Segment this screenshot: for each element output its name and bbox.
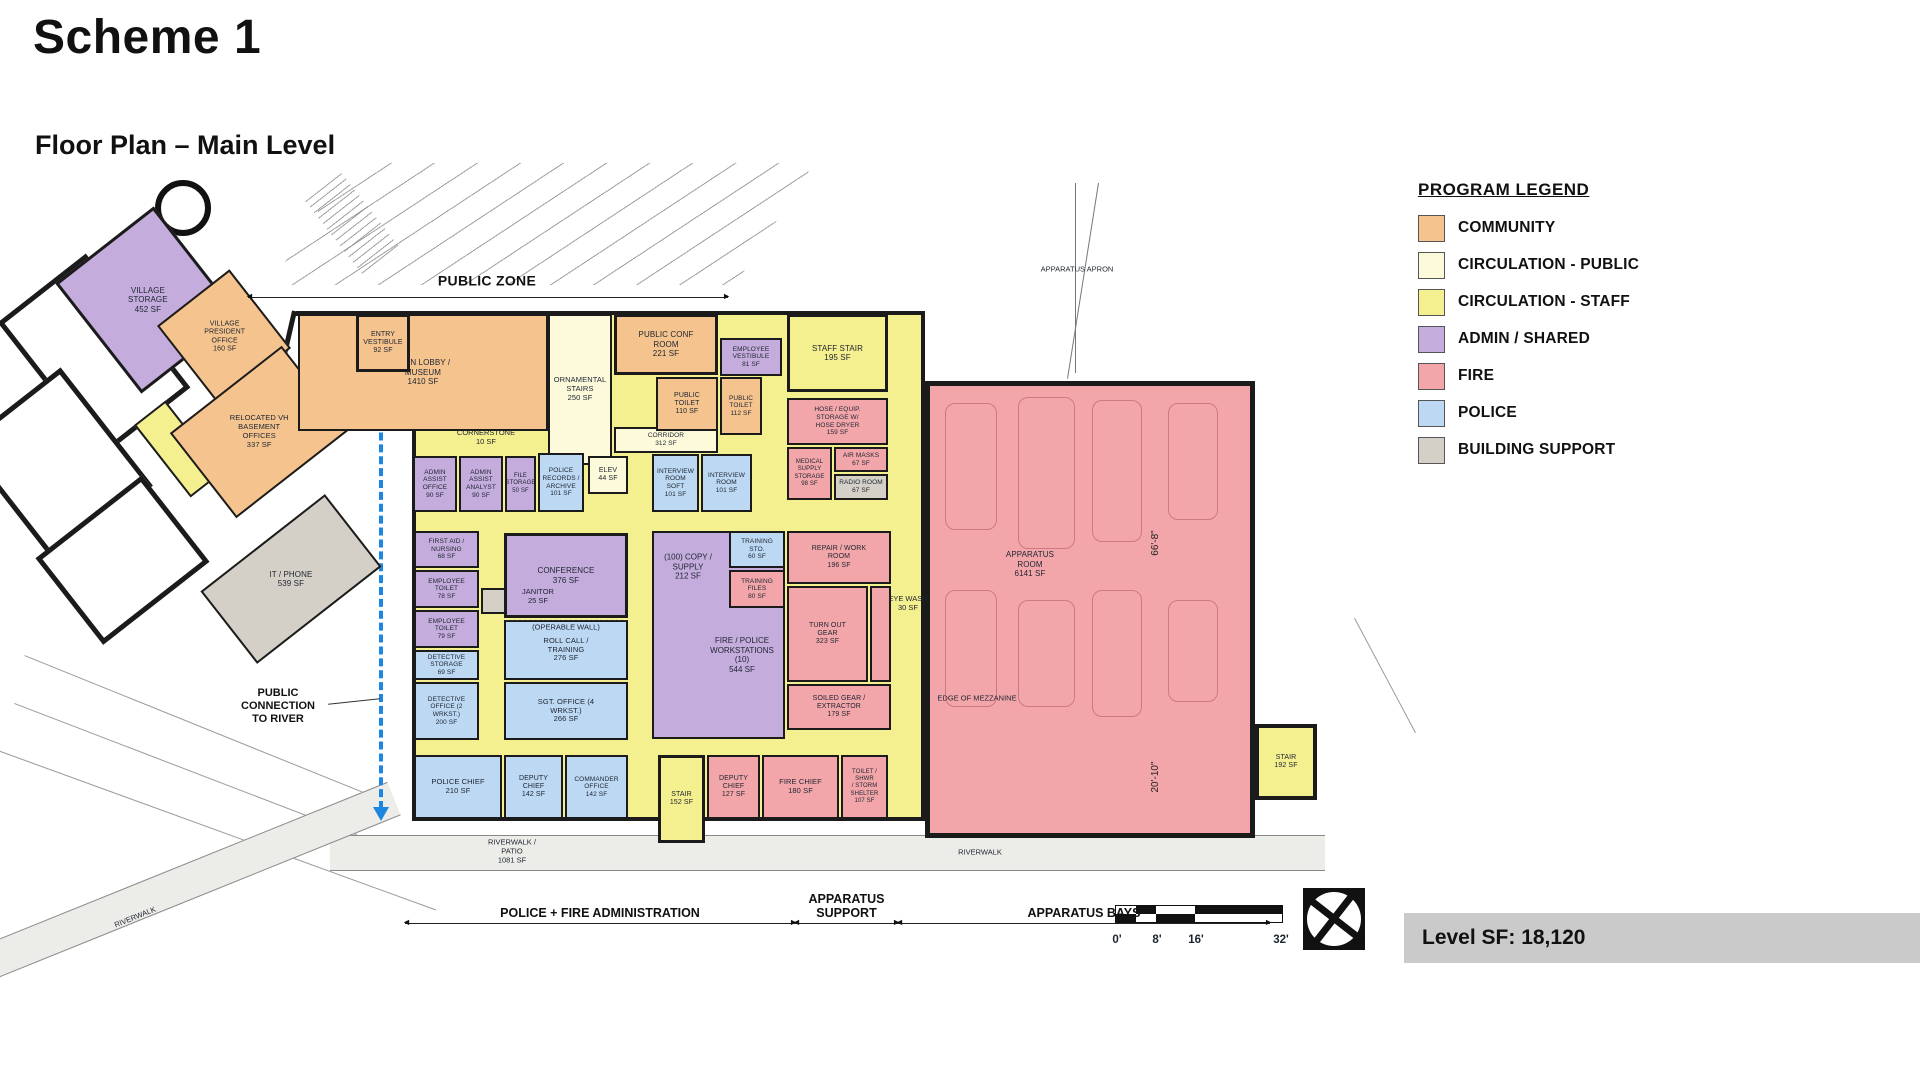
- legend-item-police: POLICE: [1418, 399, 1748, 427]
- annotation: PUBLIC ZONE: [438, 273, 536, 290]
- dimension-label: POLICE + FIRE ADMINISTRATION: [405, 907, 795, 921]
- riverwalk-path-angled: [0, 782, 401, 980]
- legend-title: PROGRAM LEGEND: [1418, 180, 1748, 200]
- public-route-dashed-path: [379, 373, 383, 809]
- village-storage-label: VILLAGE STORAGE452 SF: [128, 286, 168, 314]
- first-aid-nursing: FIRST AID / NURSING68 SF: [414, 531, 479, 568]
- turn-out-gear: TURN OUT GEAR323 SF: [787, 586, 868, 682]
- annotation: RIVERWALK: [958, 848, 1002, 857]
- medical-supply-storage: MEDICAL SUPPLY STORAGE98 SF: [787, 447, 832, 500]
- legend-label: COMMUNITY: [1458, 219, 1555, 237]
- admin-assist-office-label: ADMIN ASSIST OFFICE90 SF: [423, 469, 447, 500]
- admin-assist-analyst-label: ADMIN ASSIST ANALYST90 SF: [466, 469, 496, 500]
- interview-room-soft: INTERVIEW ROOM SOFT101 SF: [652, 454, 699, 512]
- interview-room-soft-label: INTERVIEW ROOM SOFT101 SF: [657, 468, 694, 499]
- corridor-label: CORRIDOR312 SF: [648, 432, 684, 447]
- public-toilet-2-label: PUBLIC TOILET112 SF: [729, 395, 753, 418]
- legend-item-support: BUILDING SUPPORT: [1418, 436, 1748, 464]
- annotation: (OPERABLE WALL): [532, 623, 600, 632]
- employee-toilet-2: EMPLOYEE TOILET79 SF: [414, 610, 479, 648]
- public-toilet-1: PUBLIC TOILET110 SF: [656, 377, 718, 431]
- radio-room: RADIO ROOM67 SF: [834, 474, 888, 500]
- annotation: 32': [1273, 934, 1289, 948]
- legend-label: FIRE: [1458, 367, 1494, 385]
- fire-apparatus-outline: [1018, 600, 1075, 707]
- fire-apparatus-outline: [945, 403, 997, 530]
- relocated-vh-basement-offices-label: RELOCATED VH BASEMENT OFFICES337 SF: [230, 414, 289, 449]
- fire-apparatus-outline: [1092, 400, 1142, 542]
- toilet-shwr-storm-shelter-label: TOILET / SHWR / STORM SHELTER107 SF: [843, 769, 886, 804]
- deputy-chief-police: DEPUTY CHIEF142 SF: [504, 755, 563, 819]
- sgt-office: SGT. OFFICE (4 WRKST.)266 SF: [504, 682, 628, 740]
- site-boundary-line: [1067, 183, 1099, 379]
- north-compass-icon: [1303, 888, 1365, 950]
- deputy-chief-fire: DEPUTY CHIEF127 SF: [707, 755, 760, 819]
- site-boundary-line: [1075, 183, 1076, 373]
- legend-label: BUILDING SUPPORT: [1458, 441, 1615, 459]
- public-conf-room: PUBLIC CONF ROOM221 SF: [614, 314, 718, 375]
- dimension-line: POLICE + FIRE ADMINISTRATION◄►: [405, 923, 795, 924]
- police-records-archive: POLICE RECORDS / ARCHIVE101 SF: [538, 453, 584, 512]
- training-files-label: TRAINING FILES80 SF: [741, 578, 773, 601]
- training-storage-label: TRAINING STO.60 SF: [741, 538, 773, 561]
- admin-assist-office: ADMIN ASSIST OFFICE90 SF: [413, 456, 457, 512]
- air-masks-label: AIR MASKS67 SF: [843, 452, 879, 467]
- operable-wall-dashed-line: [506, 620, 626, 621]
- public-conf-room-label: PUBLIC CONF ROOM221 SF: [639, 330, 694, 358]
- dimension-label: APPARATUS BAYS: [898, 907, 1270, 921]
- dimension-line: ◄►: [248, 297, 728, 298]
- riverwalk-path: [330, 835, 1325, 871]
- detective-storage: DETECTIVE STORAGE69 SF: [414, 650, 479, 680]
- repair-work-room: REPAIR / WORK ROOM196 SF: [787, 531, 891, 584]
- elevator: ELEV44 SF: [588, 456, 628, 494]
- police-records-archive-label: POLICE RECORDS / ARCHIVE101 SF: [542, 467, 579, 498]
- employee-vestibule-label: EMPLOYEE VESTIBULE81 SF: [733, 346, 770, 369]
- file-storage-label: FILE STORAGE50 SF: [506, 473, 536, 494]
- it-phone-label: IT / PHONE539 SF: [269, 570, 312, 589]
- employee-toilet-2-label: EMPLOYEE TOILET79 SF: [428, 618, 465, 641]
- ornamental-stairs-label: ORNAMENTAL STAIRS250 SF: [554, 376, 607, 403]
- hose-equip-storage-label: HOSE / EQUIP. STORAGE W/ HOSE DRYER159 S…: [814, 406, 860, 437]
- toilet-shwr-storm-shelter: TOILET / SHWR / STORM SHELTER107 SF: [841, 755, 888, 819]
- annotation: CORNERSTONE 10 SF: [457, 428, 515, 446]
- annotation: PUBLIC CONNECTION TO RIVER: [241, 687, 315, 727]
- program-legend: PROGRAM LEGEND COMMUNITYCIRCULATION - PU…: [1418, 180, 1748, 473]
- stair-192: STAIR192 SF: [1255, 724, 1317, 800]
- entry-vestibule-label: ENTRY VESTIBULE92 SF: [363, 331, 402, 356]
- detective-office: DETECTIVE OFFICE (2 WRKST.)200 SF: [414, 682, 479, 740]
- commander-office: COMMANDER OFFICE142 SF: [565, 755, 628, 819]
- village-president-office-label: VILLAGE PRESIDENT OFFICE160 SF: [204, 321, 245, 354]
- it-phone: IT / PHONE539 SF: [200, 494, 381, 664]
- legend-label: POLICE: [1458, 404, 1517, 422]
- detective-office-label: DETECTIVE OFFICE (2 WRKST.)200 SF: [428, 696, 465, 727]
- fire-apparatus-outline: [1168, 600, 1218, 702]
- floor-plan: VILLAGE STORAGE452 SFVILLAGE PRESIDENT O…: [30, 175, 1450, 1005]
- legend-item-fire: FIRE: [1418, 362, 1748, 390]
- annotation: EYE WASH 30 SF: [888, 594, 927, 612]
- annotation: 20'-10": [1150, 761, 1162, 792]
- deputy-chief-fire-label: DEPUTY CHIEF127 SF: [719, 775, 748, 800]
- dimension-label: APPARATUS SUPPORT: [795, 893, 898, 920]
- annotation: RIVERWALK / PATIO 1081 SF: [488, 838, 536, 865]
- employee-vestibule: EMPLOYEE VESTIBULE81 SF: [720, 338, 782, 376]
- fire-chief-label: FIRE CHIEF180 SF: [779, 778, 822, 796]
- stair-192-label: STAIR192 SF: [1274, 754, 1297, 771]
- site-line: [1354, 618, 1416, 733]
- public-toilet-2: PUBLIC TOILET112 SF: [720, 377, 762, 435]
- public-toilet-1-label: PUBLIC TOILET110 SF: [674, 392, 700, 417]
- legend-items: COMMUNITYCIRCULATION - PUBLICCIRCULATION…: [1418, 214, 1748, 464]
- turn-out-gear-label: TURN OUT GEAR323 SF: [809, 622, 846, 647]
- repair-work-room-label: REPAIR / WORK ROOM196 SF: [812, 545, 866, 570]
- hose-equip-storage: HOSE / EQUIP. STORAGE W/ HOSE DRYER159 S…: [787, 398, 888, 445]
- legend-item-circ_staff: CIRCULATION - STAFF: [1418, 288, 1748, 316]
- note-leader-line: [328, 698, 380, 704]
- employee-toilet-1-label: EMPLOYEE TOILET78 SF: [428, 578, 465, 601]
- fire-chief: FIRE CHIEF180 SF: [762, 755, 839, 819]
- annotation: APPARATUS APRON: [1041, 265, 1114, 274]
- conference-label: CONFERENCE376 SF: [537, 566, 594, 585]
- level-sf-bar: Level SF: 18,120: [1404, 913, 1920, 963]
- legend-item-circ_public: CIRCULATION - PUBLIC: [1418, 251, 1748, 279]
- medical-supply-storage-label: MEDICAL SUPPLY STORAGE98 SF: [795, 459, 825, 487]
- staff-stair: STAFF STAIR195 SF: [787, 314, 888, 392]
- annotation: 8': [1152, 934, 1161, 948]
- interview-room-label: INTERVIEW ROOM101 SF: [708, 472, 745, 495]
- training-files: TRAINING FILES80 SF: [729, 570, 785, 608]
- fire-apparatus-outline: [1018, 397, 1075, 549]
- site-line: [24, 655, 395, 806]
- apparatus-room-label: APPARATUS ROOM6141 SF: [1006, 550, 1054, 578]
- legend-label: CIRCULATION - STAFF: [1458, 293, 1630, 311]
- legend-item-community: COMMUNITY: [1418, 214, 1748, 242]
- legend-item-admin: ADMIN / SHARED: [1418, 325, 1748, 353]
- annotation: 66'-8": [1150, 530, 1162, 555]
- roll-call-training-label: ROLL CALL / TRAINING276 SF: [543, 637, 588, 664]
- page-subtitle: Floor Plan – Main Level: [35, 130, 335, 161]
- elevator-label: ELEV44 SF: [598, 467, 617, 484]
- training-storage: TRAINING STO.60 SF: [729, 531, 785, 568]
- employee-toilet-1: EMPLOYEE TOILET78 SF: [414, 570, 479, 608]
- deputy-chief-police-label: DEPUTY CHIEF142 SF: [519, 775, 548, 800]
- soiled-gear-extractor-label: SOILED GEAR / EXTRACTOR179 SF: [813, 695, 866, 720]
- annotation: 0': [1112, 934, 1121, 948]
- dimension-line: APPARATUS BAYS◄►: [898, 923, 1270, 924]
- file-storage: FILE STORAGE50 SF: [505, 456, 536, 512]
- fire-apparatus-outline: [1092, 590, 1142, 717]
- legend-label: ADMIN / SHARED: [1458, 330, 1590, 348]
- interview-room: INTERVIEW ROOM101 SF: [701, 454, 752, 512]
- legend-label: CIRCULATION - PUBLIC: [1458, 256, 1639, 274]
- fire-apparatus-outline: [945, 590, 997, 707]
- stair-152-label: STAIR152 SF: [670, 791, 693, 808]
- staff-stair-label: STAFF STAIR195 SF: [812, 344, 863, 363]
- first-aid-nursing-label: FIRST AID / NURSING68 SF: [429, 538, 465, 561]
- annotation: FIRE / POLICE WORKSTATIONS (10) 544 SF: [710, 636, 774, 674]
- dimension-line: APPARATUS SUPPORT◄►: [795, 923, 898, 924]
- soiled-gear-extractor: SOILED GEAR / EXTRACTOR179 SF: [787, 684, 891, 730]
- public-route-arrowhead: [373, 807, 389, 821]
- air-masks: AIR MASKS67 SF: [834, 447, 888, 472]
- police-chief-label: POLICE CHIEF210 SF: [431, 778, 484, 796]
- admin-assist-analyst: ADMIN ASSIST ANALYST90 SF: [459, 456, 503, 512]
- annotation: (100) COPY / SUPPLY 212 SF: [664, 553, 712, 582]
- ornamental-stairs: ORNAMENTAL STAIRS250 SF: [548, 314, 612, 465]
- main-lobby-museum: MAIN LOBBY / MUSEUM1410 SF: [298, 314, 548, 431]
- annotation: 16': [1188, 934, 1204, 948]
- level-sf-label: Level SF: 18,120: [1422, 926, 1585, 949]
- sgt-office-label: SGT. OFFICE (4 WRKST.)266 SF: [538, 698, 594, 725]
- page-title: Scheme 1: [33, 10, 261, 65]
- conference: CONFERENCE376 SF: [504, 533, 628, 618]
- commander-office-label: COMMANDER OFFICE142 SF: [574, 776, 618, 799]
- annotation: JANITOR 25 SF: [522, 587, 554, 605]
- stair-152: STAIR152 SF: [658, 755, 705, 843]
- detective-storage-label: DETECTIVE STORAGE69 SF: [428, 654, 465, 677]
- police-chief: POLICE CHIEF210 SF: [414, 755, 502, 819]
- page: Scheme 1 Floor Plan – Main Level PROGRAM…: [0, 0, 1920, 1080]
- entry-vestibule: ENTRY VESTIBULE92 SF: [356, 314, 410, 372]
- radio-room-label: RADIO ROOM67 SF: [839, 479, 883, 494]
- fire-apparatus-outline: [1168, 403, 1218, 520]
